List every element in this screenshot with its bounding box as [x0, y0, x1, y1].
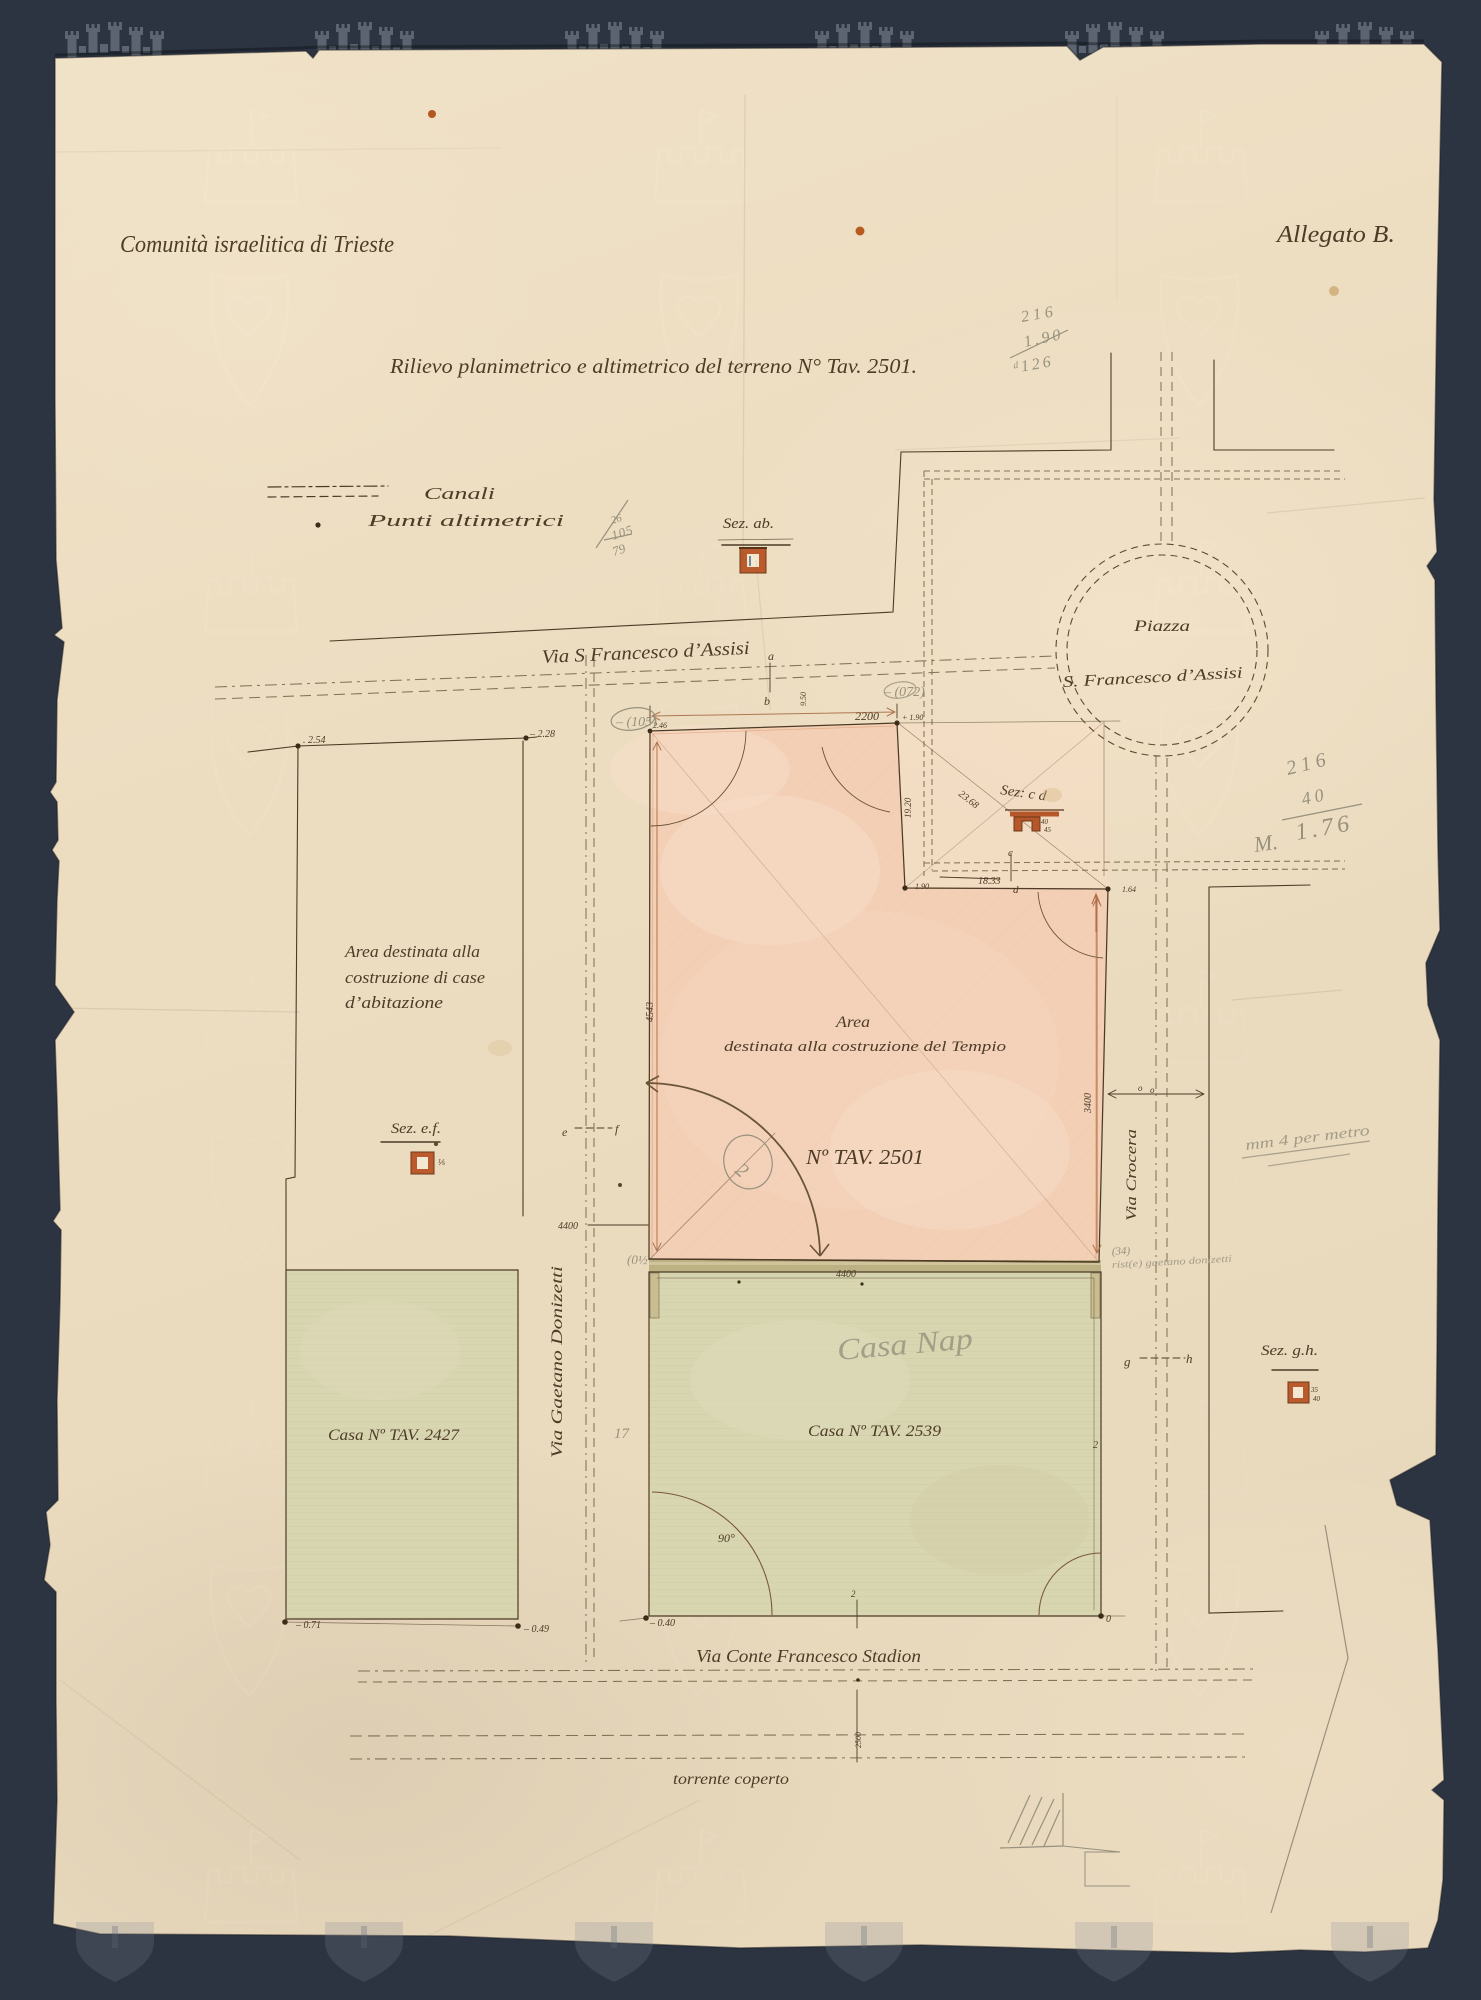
svg-text:Canali: Canali [424, 484, 495, 503]
svg-text:c: c [1008, 847, 1013, 859]
svg-text:Sez. e.f.: Sez. e.f. [391, 1121, 441, 1137]
svg-text:a: a [768, 649, 774, 663]
svg-text:Area destinata alla: Area destinata alla [344, 942, 480, 961]
svg-text:40: 40 [1041, 818, 1049, 826]
svg-text:+ 1.90: + 1.90 [902, 713, 923, 722]
svg-text:e: e [562, 1125, 568, 1139]
svg-text:Allegato B.: Allegato B. [1275, 222, 1395, 248]
svg-text:M.: M. [1251, 829, 1279, 857]
svg-text:9.50: 9.50 [799, 692, 808, 706]
svg-text:Casa Nº TAV. 2427: Casa Nº TAV. 2427 [328, 1427, 460, 1444]
svg-text:o: o [1138, 1083, 1143, 1093]
svg-text:(34): (34) [1112, 1245, 1131, 1258]
svg-text:45: 45 [1044, 826, 1052, 834]
svg-text:. 2.54: . 2.54 [303, 735, 326, 746]
svg-text:2200: 2200 [855, 709, 879, 723]
svg-text:1.64: 1.64 [1122, 885, 1136, 894]
svg-text:Via Gaetano Donizetti: Via Gaetano Donizetti [549, 1266, 566, 1458]
svg-text:o: o [1150, 1085, 1155, 1095]
svg-text:0: 0 [1106, 1614, 1111, 1625]
svg-text:Area: Area [835, 1014, 870, 1031]
svg-text:Nº TAV. 2501: Nº TAV. 2501 [805, 1145, 924, 1169]
svg-text:Sez. ab.: Sez. ab. [723, 516, 774, 532]
svg-text:h: h [1186, 1351, 1193, 1366]
svg-text:Comunità israelitica di Triest: Comunità israelitica di Trieste [120, 232, 394, 258]
svg-text:90°: 90° [718, 1531, 735, 1545]
svg-text:Piazza: Piazza [1133, 618, 1190, 635]
svg-text:18.33: 18.33 [978, 876, 1001, 887]
svg-text:19.20: 19.20 [903, 797, 913, 818]
svg-text:2: 2 [851, 1589, 856, 1599]
svg-text:1.90: 1.90 [915, 882, 929, 891]
svg-text:– 0.49: – 0.49 [523, 1624, 549, 1635]
svg-text:17: 17 [614, 1426, 631, 1442]
svg-text:2: 2 [1093, 1440, 1098, 1451]
svg-text:– (105): – (105) [615, 715, 657, 730]
svg-text:35: 35 [1310, 1386, 1319, 1394]
svg-text:Punti altimetrici: Punti altimetrici [366, 511, 564, 530]
svg-text:4400: 4400 [836, 1269, 856, 1280]
svg-text:– 2.28: – 2.28 [529, 729, 555, 740]
svg-text:Sez. g.h.: Sez. g.h. [1261, 1343, 1318, 1359]
svg-text:⅕: ⅕ [437, 1158, 445, 1167]
svg-text:d: d [1013, 884, 1019, 896]
svg-text:4543: 4543 [645, 1002, 656, 1022]
svg-text:2500: 2500 [854, 1732, 863, 1748]
svg-text:3400: 3400 [1083, 1093, 1094, 1114]
svg-text:(0½: (0½ [627, 1252, 648, 1267]
svg-text:destinata alla costruzione del: destinata alla costruzione del Tempio [724, 1039, 1007, 1055]
svg-text:torrente coperto: torrente coperto [673, 1771, 789, 1788]
svg-text:40: 40 [1313, 1395, 1321, 1403]
svg-text:d’abitazione: d’abitazione [345, 993, 444, 1012]
svg-text:Rilievo planimetrico e altimet: Rilievo planimetrico e altimetrico del t… [389, 354, 917, 378]
svg-text:Via Crocera: Via Crocera [1124, 1129, 1140, 1221]
svg-text:– 0.40: – 0.40 [649, 1618, 675, 1629]
svg-text:4400: 4400 [558, 1221, 578, 1232]
svg-text:Via Conte Francesco Stadion: Via Conte Francesco Stadion [696, 1646, 921, 1666]
svg-text:g: g [1124, 1354, 1131, 1369]
svg-text:– 0.71: – 0.71 [295, 1620, 321, 1631]
svg-text:costruzione di case: costruzione di case [345, 968, 485, 987]
svg-text:Casa Nº TAV. 2539: Casa Nº TAV. 2539 [808, 1423, 941, 1440]
